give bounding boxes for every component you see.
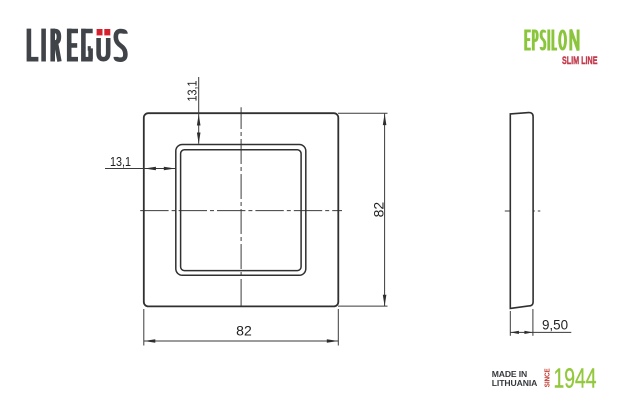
svg-text:SLIM LINE: SLIM LINE (562, 55, 598, 67)
svg-text:9,50: 9,50 (542, 318, 568, 333)
svg-text:SINCE: SINCE (542, 368, 551, 387)
svg-text:1944: 1944 (554, 363, 597, 394)
svg-text:82: 82 (370, 202, 386, 218)
svg-text:LITHUANIA: LITHUANIA (492, 378, 538, 388)
svg-text:13,1: 13,1 (110, 155, 131, 169)
svg-text:13,1: 13,1 (185, 80, 199, 101)
svg-text:82: 82 (236, 323, 252, 339)
